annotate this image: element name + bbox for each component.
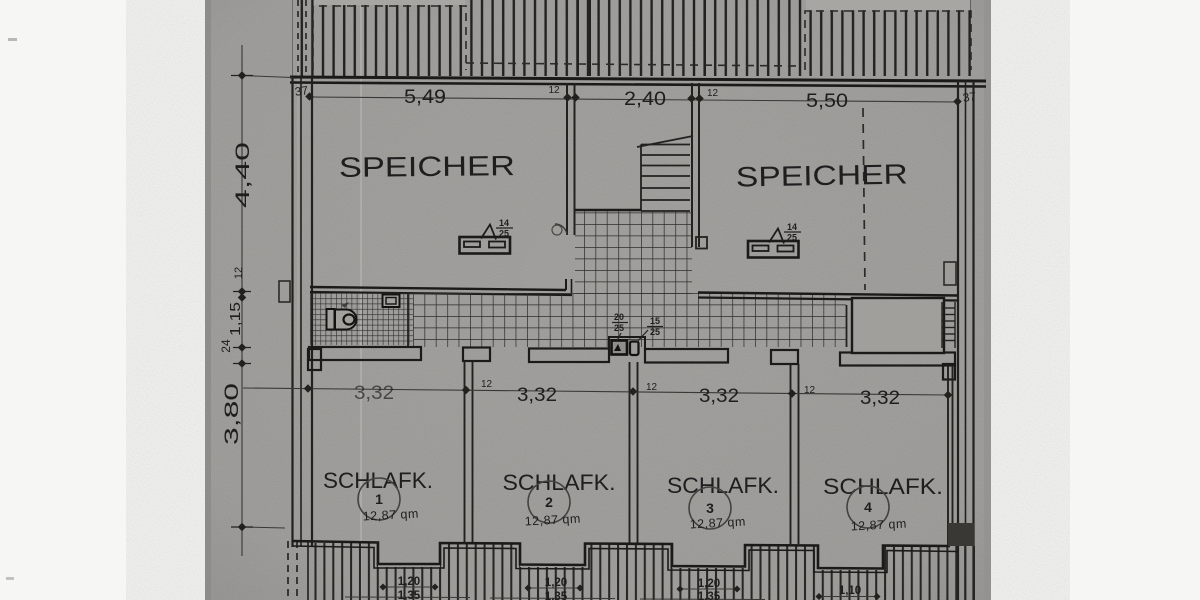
svg-text:1,10: 1,10: [839, 585, 861, 597]
svg-text:3: 3: [706, 500, 714, 516]
svg-text:1: 1: [375, 491, 383, 507]
svg-text:1,35: 1,35: [698, 591, 721, 600]
svg-text:25: 25: [787, 233, 797, 243]
svg-text:15: 15: [650, 316, 660, 326]
svg-text:1,20: 1,20: [545, 577, 567, 589]
svg-text:3,32: 3,32: [354, 383, 394, 404]
svg-text:1,15: 1,15: [227, 302, 244, 336]
svg-text:12: 12: [233, 267, 245, 279]
svg-text:12: 12: [707, 88, 719, 99]
svg-text:1,20: 1,20: [698, 578, 720, 590]
svg-text:SCHLAFK.: SCHLAFK.: [823, 474, 943, 499]
svg-text:3,80: 3,80: [222, 383, 243, 445]
svg-text:4: 4: [864, 499, 872, 515]
svg-text:3,32: 3,32: [699, 386, 739, 407]
svg-text:20: 20: [614, 312, 624, 322]
svg-text:14: 14: [787, 222, 797, 232]
svg-text:2,40: 2,40: [624, 89, 666, 110]
svg-text:1,35: 1,35: [545, 591, 568, 600]
svg-text:3,32: 3,32: [517, 385, 557, 406]
svg-text:1,35: 1,35: [398, 590, 421, 600]
svg-text:12,87 qm: 12,87 qm: [850, 517, 907, 534]
svg-text:12,87 qm: 12,87 qm: [524, 512, 581, 529]
svg-text:12: 12: [646, 382, 658, 393]
svg-text:1,20: 1,20: [398, 576, 420, 588]
svg-text:12: 12: [548, 85, 560, 96]
svg-text:12,87 qm: 12,87 qm: [689, 515, 746, 532]
svg-text:25: 25: [614, 323, 624, 333]
svg-text:12: 12: [481, 379, 493, 390]
svg-text:SPEICHER: SPEICHER: [339, 150, 515, 183]
svg-text:5,49: 5,49: [404, 87, 446, 108]
svg-text:24: 24: [219, 339, 233, 353]
svg-text:SCHLAFK.: SCHLAFK.: [503, 470, 616, 495]
svg-text:12,87 qm: 12,87 qm: [362, 507, 419, 524]
svg-text:5,50: 5,50: [806, 91, 848, 112]
svg-text:SCHLAFK.: SCHLAFK.: [323, 468, 433, 493]
svg-text:4,40: 4,40: [233, 142, 254, 208]
svg-text:3,32: 3,32: [860, 388, 900, 409]
svg-text:25: 25: [499, 229, 509, 239]
svg-text:12: 12: [804, 385, 816, 396]
svg-text:25: 25: [650, 327, 660, 337]
svg-text:14: 14: [499, 218, 509, 228]
svg-text:SCHLAFK.: SCHLAFK.: [667, 473, 779, 498]
svg-text:2: 2: [545, 494, 553, 510]
svg-text:SPEICHER: SPEICHER: [736, 159, 909, 193]
svg-text:37: 37: [962, 89, 977, 105]
